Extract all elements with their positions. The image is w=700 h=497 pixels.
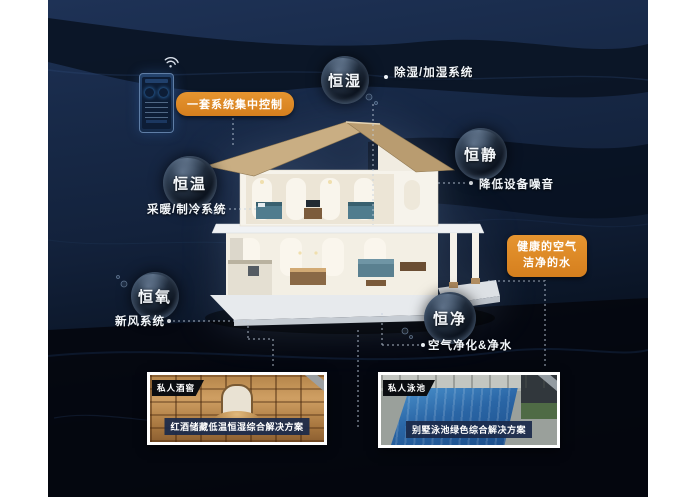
annotation-dehumidify-system: 除湿/加湿系统 <box>394 64 473 80</box>
control-panel-titlebar <box>145 79 168 83</box>
dial-icon <box>159 88 168 97</box>
photo-card-wine-cellar: 私人酒窖 红酒储藏低温恒湿综合解决方案 <box>147 372 327 445</box>
annotation-noise-reduction: 降低设备噪音 <box>479 176 554 192</box>
central-control-callout: 一套系统集中控制 <box>176 92 294 116</box>
dial-icon <box>145 88 154 97</box>
control-panel-screen <box>142 77 171 129</box>
bubble-constant-humidity: 恒湿 <box>321 56 369 104</box>
bubble-label: 恒静 <box>464 144 498 165</box>
infographic-canvas: 一套系统集中控制 恒湿 恒静 恒温 恒氧 恒净 除湿/加湿系统 降低设备噪音 采… <box>0 0 700 497</box>
annotation-fresh-air-system: 新风系统 <box>115 313 165 329</box>
annotation-air-water-purification: 空气净化&净水 <box>428 337 512 353</box>
callout-line-1: 健康的空气 <box>514 240 580 256</box>
photo-caption: 别墅泳池绿色综合解决方案 <box>406 421 532 438</box>
pool-photo: 私人泳池 别墅泳池绿色综合解决方案 <box>381 375 557 445</box>
control-panel-menu-rows <box>145 102 168 118</box>
bubble-label: 恒湿 <box>328 70 362 91</box>
bubble-label: 恒温 <box>173 173 207 194</box>
bubble-label: 恒氧 <box>138 286 172 307</box>
photo-tag-label: 私人酒窖 <box>152 380 204 396</box>
corner-ribbon <box>302 375 324 393</box>
pool-greenery <box>521 403 557 419</box>
control-panel-dials <box>142 88 171 97</box>
photo-card-pool: 私人泳池 别墅泳池绿色综合解决方案 <box>378 372 560 448</box>
photo-caption: 红酒储藏低温恒湿综合解决方案 <box>164 418 309 435</box>
photo-tag-label: 私人泳池 <box>383 380 435 396</box>
callout-line-2: 洁净的水 <box>514 256 580 272</box>
control-panel-footer <box>146 120 167 123</box>
healthy-air-water-callout: 健康的空气 洁净的水 <box>507 235 587 277</box>
bubble-constant-quiet: 恒静 <box>455 128 507 180</box>
wine-cellar-photo: 私人酒窖 红酒储藏低温恒湿综合解决方案 <box>150 375 324 442</box>
dark-stage-background: 一套系统集中控制 恒湿 恒静 恒温 恒氧 恒净 除湿/加湿系统 降低设备噪音 采… <box>48 0 648 497</box>
bubble-label: 恒净 <box>433 308 467 329</box>
smart-home-control-panel <box>139 73 174 133</box>
annotation-heating-cooling-system: 采暖/制冷系统 <box>147 201 226 217</box>
wifi-icon <box>162 54 182 70</box>
